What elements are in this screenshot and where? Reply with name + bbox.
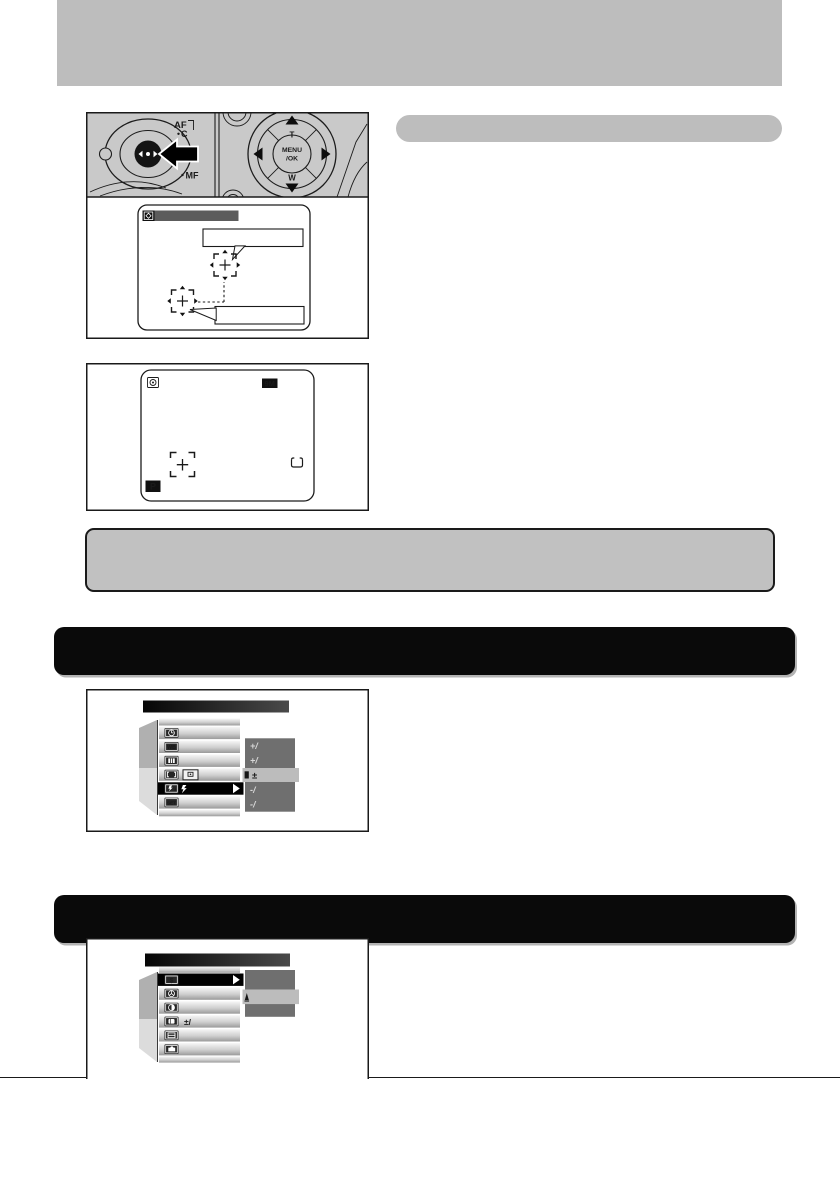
menu-row-flash-brightness: ±/	[159, 1015, 240, 1027]
pad-label-w: W	[288, 174, 296, 183]
screen-title-bar	[155, 211, 239, 222]
c-dot	[177, 133, 179, 135]
selected-option-band	[243, 768, 300, 782]
figure-menu-flash: WB	[86, 689, 369, 832]
menu-row-color	[159, 987, 240, 999]
options-dropdown	[243, 970, 300, 1017]
callout-box-top	[203, 229, 303, 247]
mode-badge: P	[146, 481, 161, 493]
flash-brightness-icon	[169, 1019, 175, 1024]
section-banner-2	[54, 895, 795, 943]
figure-standby-screen: 9M P	[86, 363, 369, 511]
menu-ok-label-1: MENU	[282, 147, 302, 154]
menu-row-setup: SET	[159, 796, 240, 808]
resolution-badge: 9M	[262, 379, 278, 389]
flash-options-dropdown: +/ +/ ± -/ -/	[243, 738, 300, 811]
button-center-dot	[146, 152, 150, 156]
selected-option-icon	[245, 771, 249, 778]
white-balance-icon: WB	[167, 745, 176, 751]
dial-label-c: C	[181, 129, 188, 139]
check-note-bar	[396, 115, 782, 142]
menu-ok-label-2: /OK	[286, 156, 298, 163]
menu-tab-upper	[139, 720, 157, 768]
menu-bottom-strip	[159, 1056, 240, 1062]
manual-page: AF C MF	[0, 0, 840, 1190]
option-zero: ±	[252, 770, 257, 781]
resolution-badge-label: 9M	[264, 379, 274, 388]
menu-title-bar	[143, 701, 289, 713]
menu-row-sharpness-selected: $	[158, 974, 244, 986]
selected-option-band	[243, 990, 300, 1005]
menu-row-photometry	[159, 755, 240, 767]
figure-menu-shooting: $ ±/	[86, 938, 369, 1079]
figure-camera-controls: AF C MF	[86, 112, 369, 339]
menu-row-tone	[159, 1001, 240, 1013]
sharpness-icon: $	[170, 977, 174, 984]
photometry-icon	[168, 758, 174, 763]
menu-row-self-timer	[159, 727, 240, 739]
figure-border	[87, 364, 369, 511]
menu-bottom-strip	[159, 810, 240, 817]
menu-row-af-mode	[159, 768, 240, 780]
four-way-controller: T W MENU /OK	[248, 112, 336, 198]
menu-top-strip	[159, 719, 240, 726]
flash-brightness-value: ±/	[184, 1017, 192, 1027]
menu-row-white-balance: WB	[159, 741, 240, 753]
menu-row-custom	[159, 1043, 240, 1055]
callout-box-bottom	[215, 307, 304, 325]
header-banner	[57, 0, 782, 86]
af-center-icon	[183, 770, 198, 780]
menu-title-bar	[145, 954, 290, 967]
mf-dot	[181, 174, 183, 176]
menu-row-flash-compensation-selected: ±	[158, 782, 244, 794]
dial-notch	[100, 148, 112, 160]
mode-badge-label: P	[150, 482, 156, 492]
setup-icon: SET	[167, 801, 176, 806]
menu-row-frame	[159, 1029, 240, 1041]
menu-tab-upper	[139, 972, 157, 1019]
section-banner-1	[54, 627, 795, 675]
pad-label-t: T	[290, 131, 295, 140]
dial-label-mf: MF	[186, 171, 199, 181]
menu-top-strip	[159, 967, 240, 973]
note-box	[85, 528, 775, 592]
